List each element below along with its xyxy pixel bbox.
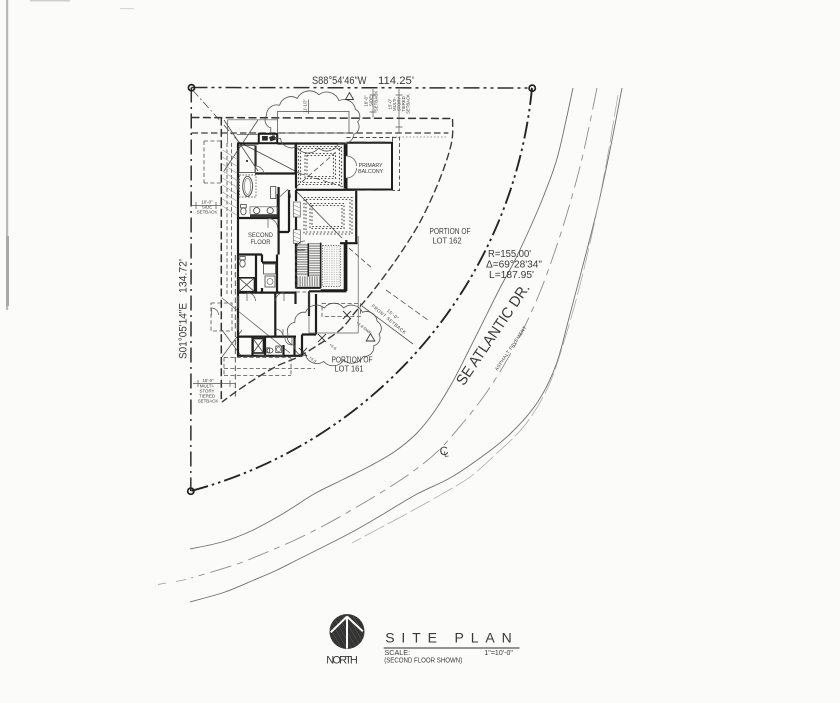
svg-text:LOT 162: LOT 162 [433,237,463,246]
svg-text:PORTION OF: PORTION OF [332,356,373,365]
svg-text:Δ=69°28'34": Δ=69°28'34" [486,260,542,271]
svg-text:BALCONY: BALCONY [358,169,383,175]
svg-text:R=155.00': R=155.00' [488,249,531,260]
svg-text:LOT 161: LOT 161 [335,365,365,374]
svg-text:L=187.95': L=187.95' [489,270,534,281]
svg-text:11'-1/2": 11'-1/2" [303,99,308,113]
svg-text:SETBACK: SETBACK [197,210,218,215]
svg-text:SETBACK: SETBACK [406,94,411,114]
svg-text:SETBACK: SETBACK [198,399,219,404]
svg-text:NORTH: NORTH [326,655,358,667]
svg-text:(SECOND FLOOR SHOWN): (SECOND FLOOR SHOWN) [384,656,462,665]
svg-text:SECOND: SECOND [248,232,273,239]
svg-text:S01°05'14"E: S01°05'14"E [178,303,190,359]
svg-text:SETBACK: SETBACK [374,91,379,112]
svg-text:S88°54'46"W: S88°54'46"W [312,75,367,87]
svg-text:FLOOR: FLOOR [251,239,271,246]
svg-text:15'-0": 15'-0" [202,378,214,383]
svg-text:134.72': 134.72' [178,259,190,293]
svg-text:114.25': 114.25' [378,75,414,87]
svg-text:1"=10'-0": 1"=10'-0" [484,648,513,657]
svg-text:PORTION OF: PORTION OF [430,227,471,236]
